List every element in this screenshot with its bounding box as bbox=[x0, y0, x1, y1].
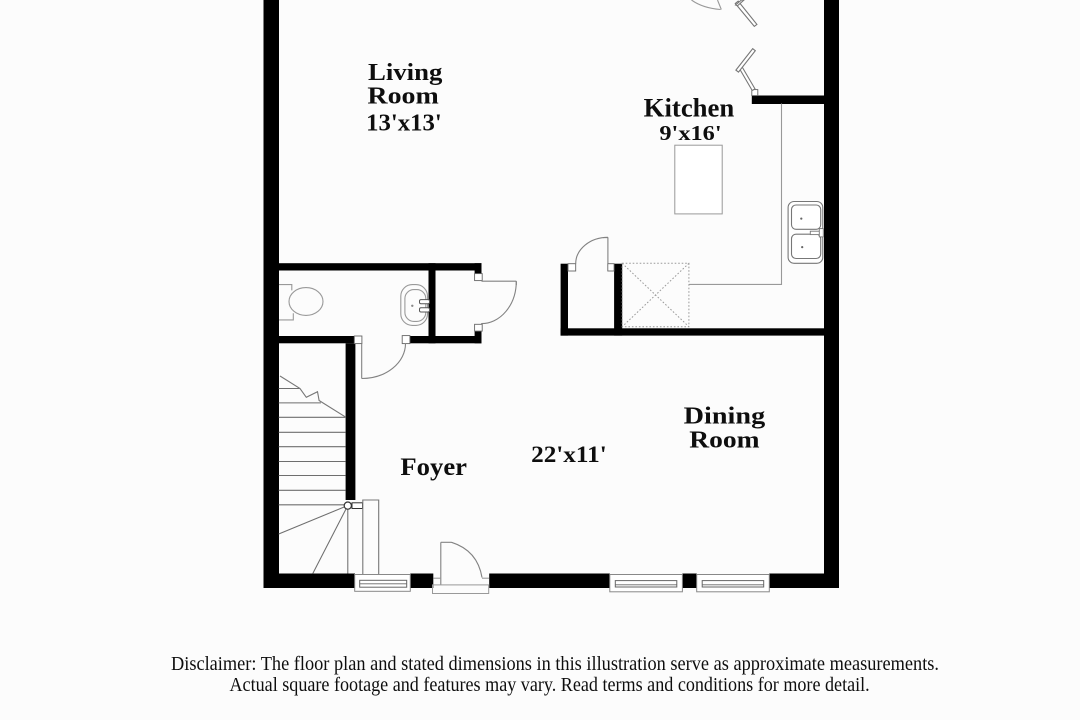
svg-text:22'x11': 22'x11' bbox=[531, 442, 607, 467]
svg-text:Disclaimer: The floor plan and: Disclaimer: The floor plan and stated di… bbox=[171, 653, 939, 675]
svg-text:Actual square footage and feat: Actual square footage and features may v… bbox=[230, 674, 870, 696]
svg-text:9'x16': 9'x16' bbox=[659, 121, 721, 145]
svg-text:Dining: Dining bbox=[684, 403, 766, 429]
svg-text:Foyer: Foyer bbox=[400, 454, 467, 481]
svg-text:13'x13': 13'x13' bbox=[366, 111, 442, 137]
svg-text:Living: Living bbox=[368, 60, 442, 86]
svg-text:Room: Room bbox=[367, 84, 438, 110]
svg-text:Room: Room bbox=[689, 428, 759, 454]
svg-text:Kitchen: Kitchen bbox=[644, 94, 735, 123]
